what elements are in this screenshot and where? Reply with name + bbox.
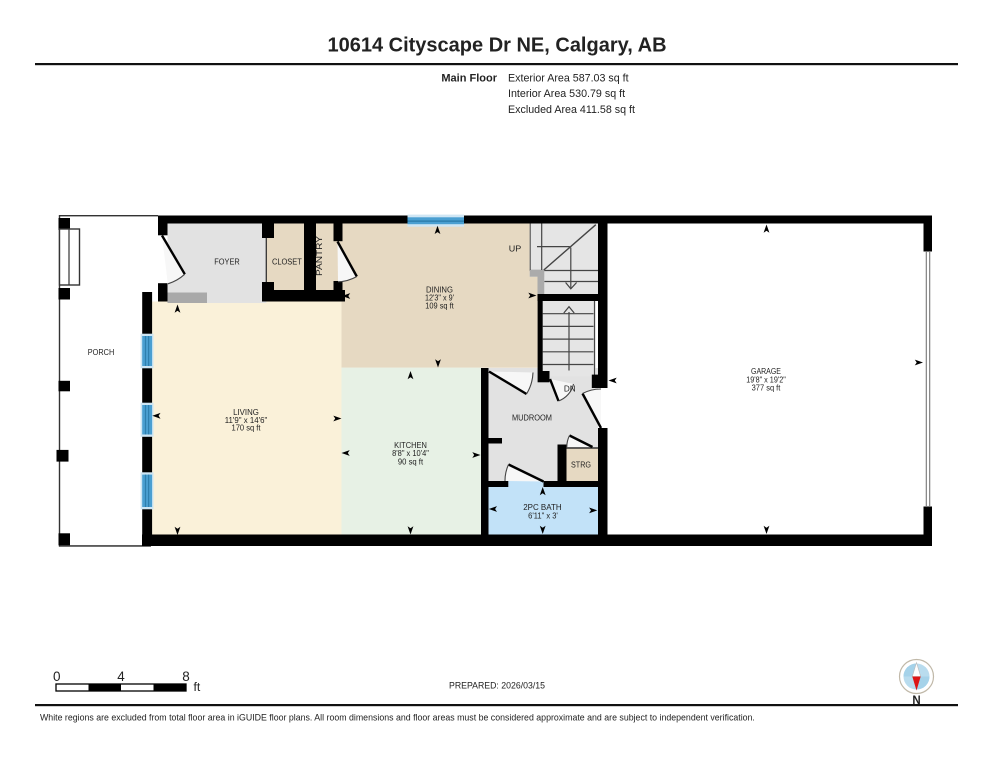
svg-text:Interior Area 530.79 sq ft: Interior Area 530.79 sq ft [508,88,625,100]
svg-text:Excluded Area 411.58 sq ft: Excluded Area 411.58 sq ft [508,104,635,116]
svg-text:CLOSET: CLOSET [272,256,303,266]
svg-text:MUDROOM: MUDROOM [512,413,552,423]
svg-text:FOYER: FOYER [214,256,240,266]
svg-text:DN: DN [564,384,576,394]
svg-text:Main Floor: Main Floor [441,73,497,85]
svg-text:Exterior Area 587.03 sq ft: Exterior Area 587.03 sq ft [508,73,629,85]
svg-text:2PC BATH: 2PC BATH [523,502,561,512]
svg-text:0: 0 [53,669,61,684]
svg-text:8: 8 [182,669,190,684]
svg-text:White regions are excluded fro: White regions are excluded from total fl… [40,713,755,723]
svg-text:PORCH: PORCH [88,347,115,357]
svg-text:170 sq ft: 170 sq ft [232,424,262,433]
svg-text:10614 Cityscape Dr NE, Calgary: 10614 Cityscape Dr NE, Calgary, AB [327,35,666,57]
svg-text:4: 4 [117,669,125,684]
svg-text:UP: UP [509,244,522,254]
svg-text:ft: ft [194,680,201,694]
svg-text:377 sq ft: 377 sq ft [752,384,781,393]
svg-text:90 sq ft: 90 sq ft [398,457,424,466]
svg-text:109 sq ft: 109 sq ft [425,301,454,310]
svg-text:6'11" x 3': 6'11" x 3' [528,511,558,520]
svg-text:STRG: STRG [571,460,591,470]
svg-text:PREPARED: 2026/03/15: PREPARED: 2026/03/15 [449,680,545,690]
